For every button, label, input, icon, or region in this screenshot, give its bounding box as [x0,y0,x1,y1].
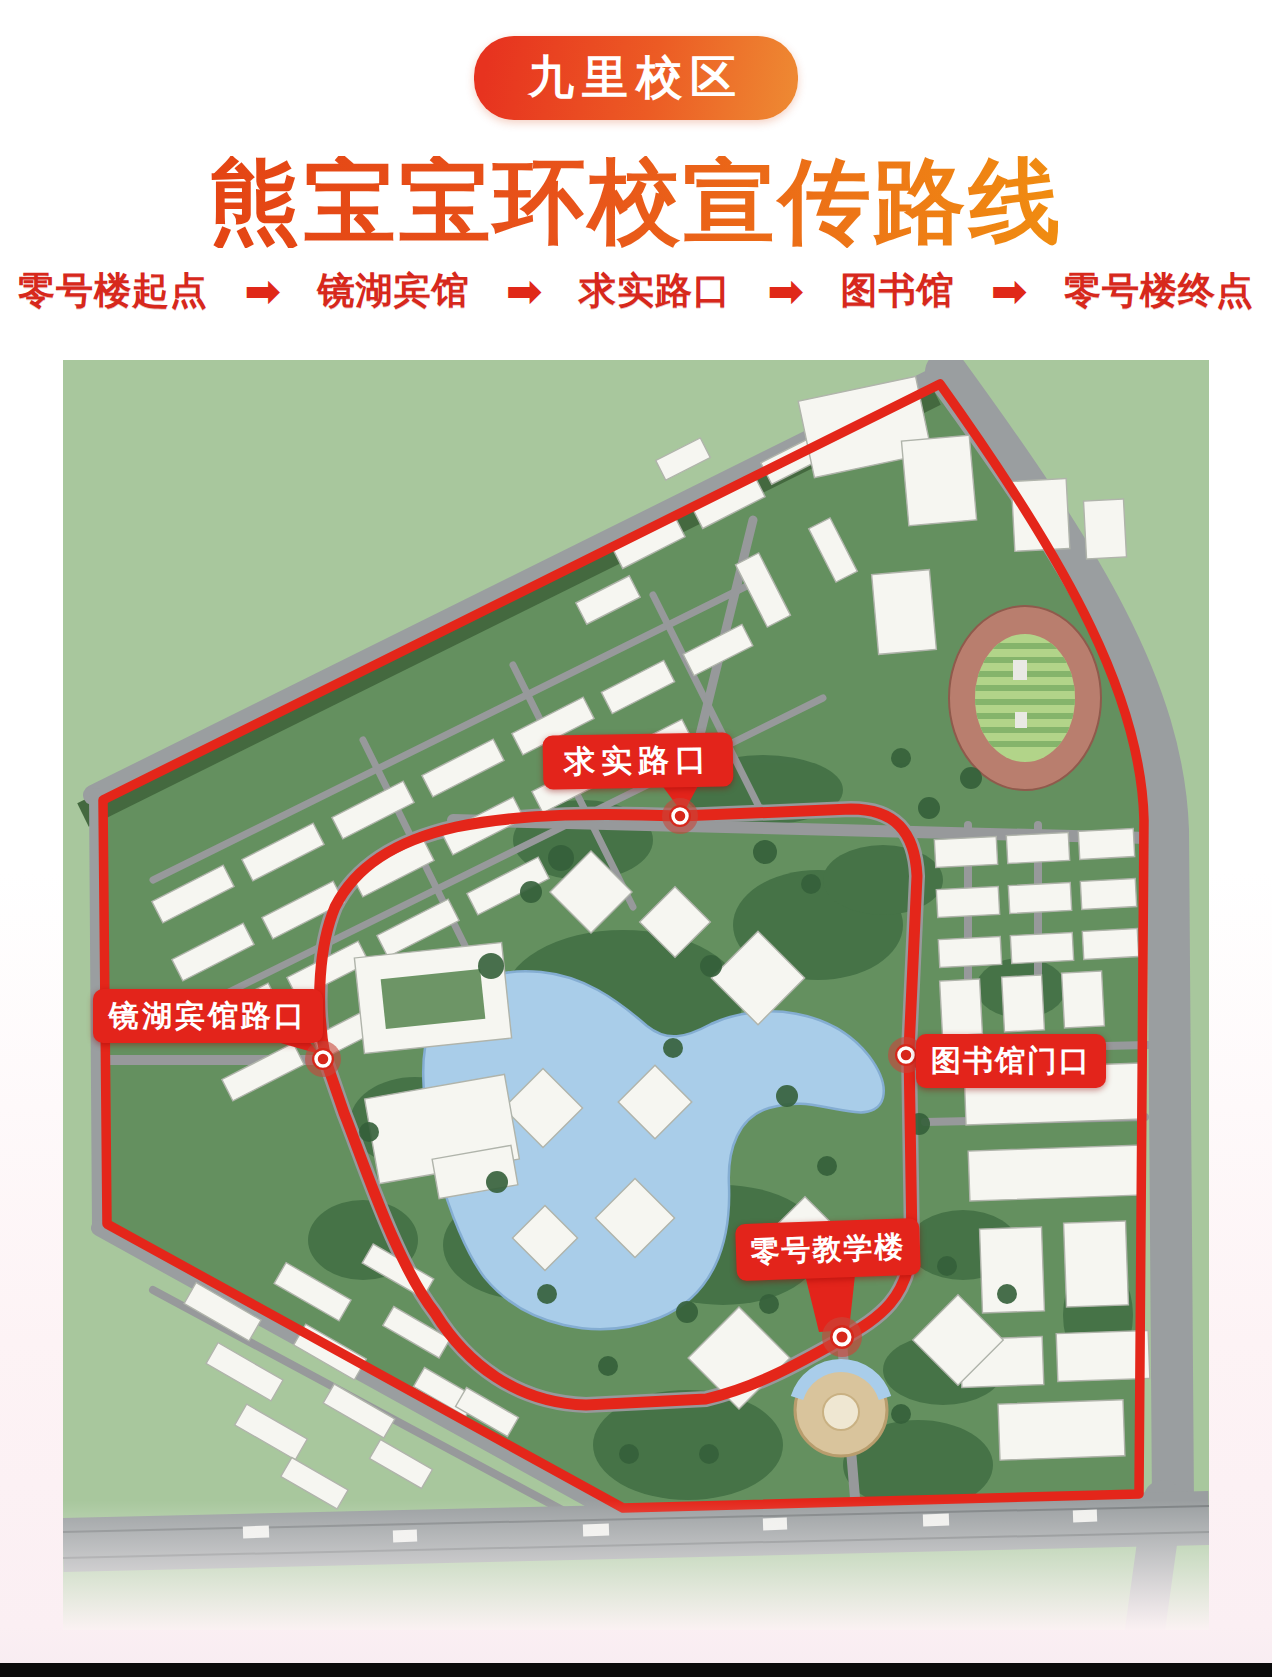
map-label-library-entrance: 图书馆门口 [916,1034,1106,1088]
arrow-right-icon: ➡ [244,269,281,313]
route-stop-end: 零号楼终点 [1064,266,1254,316]
marker-qiushi-dot [662,798,698,834]
map-stadium [949,606,1101,790]
campus-map: 求实路口 镜湖宾馆路口 图书馆门口 零号教学楼 [63,360,1209,1630]
map-south-plaza [795,1364,887,1456]
map-bottom-fade [63,1500,1209,1630]
page-title: 熊宝宝环校宣传路线 [0,156,1272,248]
bottom-black-bar [0,1663,1272,1677]
map-label-building-zero: 零号教学楼 [735,1218,921,1281]
route-stop-qiushi: 求实路口 [579,266,731,316]
marker-linghao-dot [822,1317,862,1357]
marker-jinghu-dot [305,1041,341,1077]
arrow-right-icon: ➡ [767,269,804,313]
map-label-jinghu-hotel-intersection: 镜湖宾馆路口 [93,989,323,1043]
campus-badge-row: 九里校区 [0,36,1272,120]
route-summary-bar: 零号楼起点 ➡ 镜湖宾馆 ➡ 求实路口 ➡ 图书馆 ➡ 零号楼终点 [18,266,1254,316]
route-stop-library: 图书馆 [841,266,955,316]
arrow-right-icon: ➡ [506,269,543,313]
arrow-right-icon: ➡ [991,269,1028,313]
route-stop-hotel: 镜湖宾馆 [318,266,470,316]
poster-page: 九里校区 熊宝宝环校宣传路线 零号楼起点 ➡ 镜湖宾馆 ➡ 求实路口 ➡ 图书馆… [0,0,1272,1677]
campus-badge: 九里校区 [474,36,798,120]
route-stop-start: 零号楼起点 [18,266,208,316]
map-label-qiushi-intersection: 求实路口 [543,732,734,789]
